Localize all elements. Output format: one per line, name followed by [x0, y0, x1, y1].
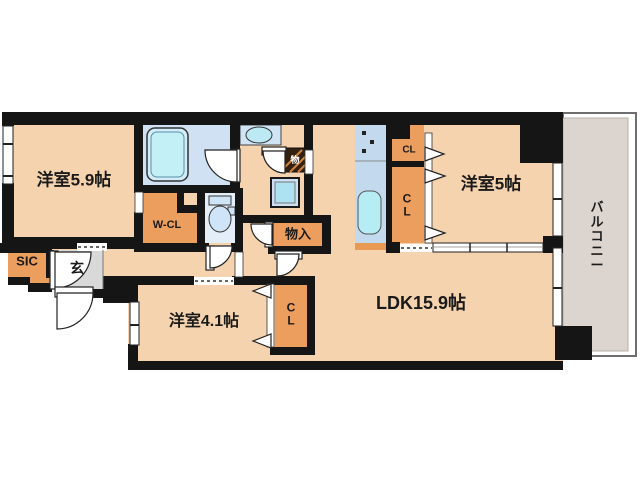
bathtub — [147, 128, 188, 181]
washroom-opening — [305, 150, 313, 174]
label-walk-in-closet: W-CL — [153, 219, 182, 231]
label-balcony: バ ル コ ニ ー — [590, 201, 603, 274]
floorplan-drawing — [0, 0, 640, 480]
label-bedroom59: 洋室5.9帖 — [37, 170, 112, 189]
label-closet-bedroom5: C L — [403, 193, 412, 220]
label-closet-kitchen: CL — [402, 144, 415, 155]
window-bedroom59 — [3, 126, 13, 184]
walkin-closet-opening — [135, 192, 143, 213]
label-closet-bedroom41: C L — [287, 302, 296, 329]
slider-bedroom5-ldk — [433, 243, 543, 252]
label-bedroom41: 洋室4.1帖 — [169, 313, 239, 331]
floorplan-canvas: 洋室5.9帖 洋室5帖 洋室4.1帖 LDK15.9帖 バ ル コ ニ ー 玄 … — [0, 0, 640, 480]
hall-ldk-slider — [235, 252, 243, 277]
label-shoes-closet: SIC — [16, 255, 38, 270]
label-entrance: 玄 — [70, 261, 84, 277]
window-bedroom5-balcony — [553, 163, 562, 236]
wash-basin — [240, 125, 281, 145]
slider-bedroom5-dotted — [400, 244, 433, 252]
label-utility-storage: 物 — [290, 155, 299, 165]
slider-bedroom41 — [194, 277, 234, 285]
washing-machine — [271, 178, 299, 207]
label-ldk: LDK15.9帖 — [376, 293, 466, 313]
kitchen-sink — [358, 191, 381, 234]
label-hall-storage: 物入 — [285, 228, 311, 243]
window-bedroom41 — [130, 302, 139, 345]
slider-bedroom59 — [77, 243, 107, 251]
label-bedroom5: 洋室5帖 — [461, 174, 521, 193]
window-ldk-balcony — [553, 248, 562, 326]
kitchen-counter-end — [355, 243, 386, 250]
walk-in-closet-notch — [184, 193, 197, 205]
